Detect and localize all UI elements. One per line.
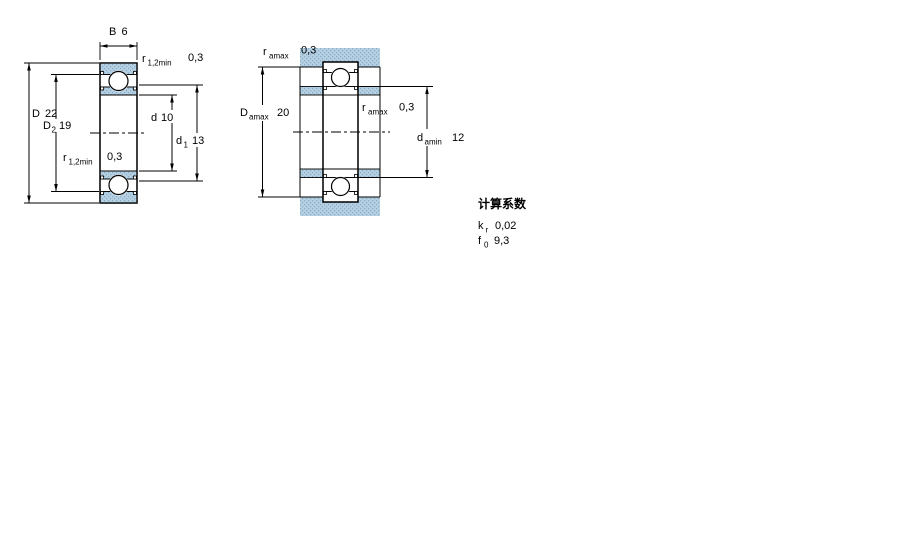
ring-step-notch — [355, 70, 358, 73]
ramax-top-value: 0,3 — [301, 45, 316, 57]
ring-step-notch — [101, 176, 104, 179]
bearing-drawing: B 6 D 22 D 2 19 — [0, 0, 900, 560]
dim-damin-sub: amin — [425, 138, 442, 147]
fillet-top-sub: 1,2min — [148, 59, 172, 68]
fillet-bottom-value: 0,3 — [107, 151, 122, 163]
kr-sub: r — [486, 226, 489, 235]
calc-factor-row: f 0 9,3 — [478, 235, 509, 250]
calculation-factors: 计算系数 k r 0,02 f 0 9,3 — [478, 196, 527, 250]
label-ramax-mid: r amax 0,3 — [362, 102, 414, 117]
dim-D2-value: 19 — [59, 120, 71, 132]
dim-d-symbol: d — [151, 112, 157, 124]
ramax-top-symbol: r — [263, 46, 267, 58]
ramax-mid-sub: amax — [368, 108, 388, 117]
f0-sub: 0 — [484, 241, 489, 250]
ramax-mid-symbol: r — [362, 102, 366, 114]
dim-d1-sub: 1 — [184, 141, 189, 150]
dim-B: B 6 — [100, 26, 137, 60]
left-ball-top — [109, 72, 128, 91]
dim-Damax-symbol: D — [240, 107, 248, 119]
shaft-shoulder-top-left — [300, 87, 323, 96]
dim-B-symbol: B — [109, 26, 116, 38]
fillet-top-value: 0,3 — [188, 52, 203, 64]
right-ball-top — [332, 69, 350, 87]
ring-step-notch — [324, 87, 327, 90]
dim-Damax-sub: amax — [249, 113, 269, 122]
dim-damin-value: 12 — [452, 132, 464, 144]
ring-step-notch — [133, 72, 136, 75]
ring-step-notch — [324, 175, 327, 178]
dim-d-value: 10 — [161, 112, 173, 124]
dim-damin-symbol: d — [417, 132, 423, 144]
f0-value: 9,3 — [494, 235, 509, 247]
dim-D2-sub: 2 — [52, 126, 57, 135]
calc-factors-heading: 计算系数 — [478, 196, 527, 211]
ramax-top-sub: amax — [269, 52, 289, 61]
left-section-view: B 6 D 22 D 2 19 — [24, 26, 207, 203]
ring-step-notch — [355, 87, 358, 90]
bearing-drawing-canvas: B 6 D 22 D 2 19 — [0, 0, 900, 560]
shaft-shoulder-top-right — [358, 87, 380, 96]
right-ball-bottom — [332, 178, 350, 196]
dim-D2-symbol: D — [43, 120, 51, 132]
ring-step-notch — [355, 192, 358, 195]
kr-value: 0,02 — [495, 220, 516, 232]
dim-Damax: D amax 20 — [237, 67, 301, 197]
dim-Damax-value: 20 — [277, 107, 289, 119]
dim-d1-value: 13 — [192, 135, 204, 147]
calc-factor-row: k r 0,02 — [478, 220, 516, 235]
dim-d1-symbol: d — [176, 135, 182, 147]
ring-step-notch — [101, 192, 104, 195]
ring-step-notch — [133, 192, 136, 195]
shaft-shoulder-bottom-right — [358, 169, 380, 178]
dim-D-value: 22 — [45, 108, 57, 120]
right-mounting-view: D amax 20 d amin 12 r amax 0,3 r amax 0,… — [237, 45, 471, 217]
fillet-top-symbol: r — [142, 53, 146, 65]
kr-symbol: k — [478, 220, 484, 232]
ring-step-notch — [101, 72, 104, 75]
dim-D: D 22 — [24, 63, 99, 203]
dim-D-symbol: D — [32, 108, 40, 120]
fillet-bottom-sub: 1,2min — [69, 158, 93, 167]
f0-symbol: f — [478, 235, 482, 247]
dim-d: d 10 — [139, 95, 178, 171]
ring-step-notch — [133, 87, 136, 90]
ring-step-notch — [324, 192, 327, 195]
fillet-bottom-symbol: r — [63, 152, 67, 164]
shaft-shoulder-bottom-left — [300, 169, 323, 178]
left-ball-bottom — [109, 176, 128, 195]
label-r12min-top: r 1,2min 0,3 — [142, 52, 203, 68]
dim-B-value: 6 — [122, 26, 128, 38]
ring-step-notch — [324, 70, 327, 73]
ring-step-notch — [101, 87, 104, 90]
ring-step-notch — [133, 176, 136, 179]
ring-step-notch — [355, 175, 358, 178]
ramax-mid-value: 0,3 — [399, 102, 414, 114]
